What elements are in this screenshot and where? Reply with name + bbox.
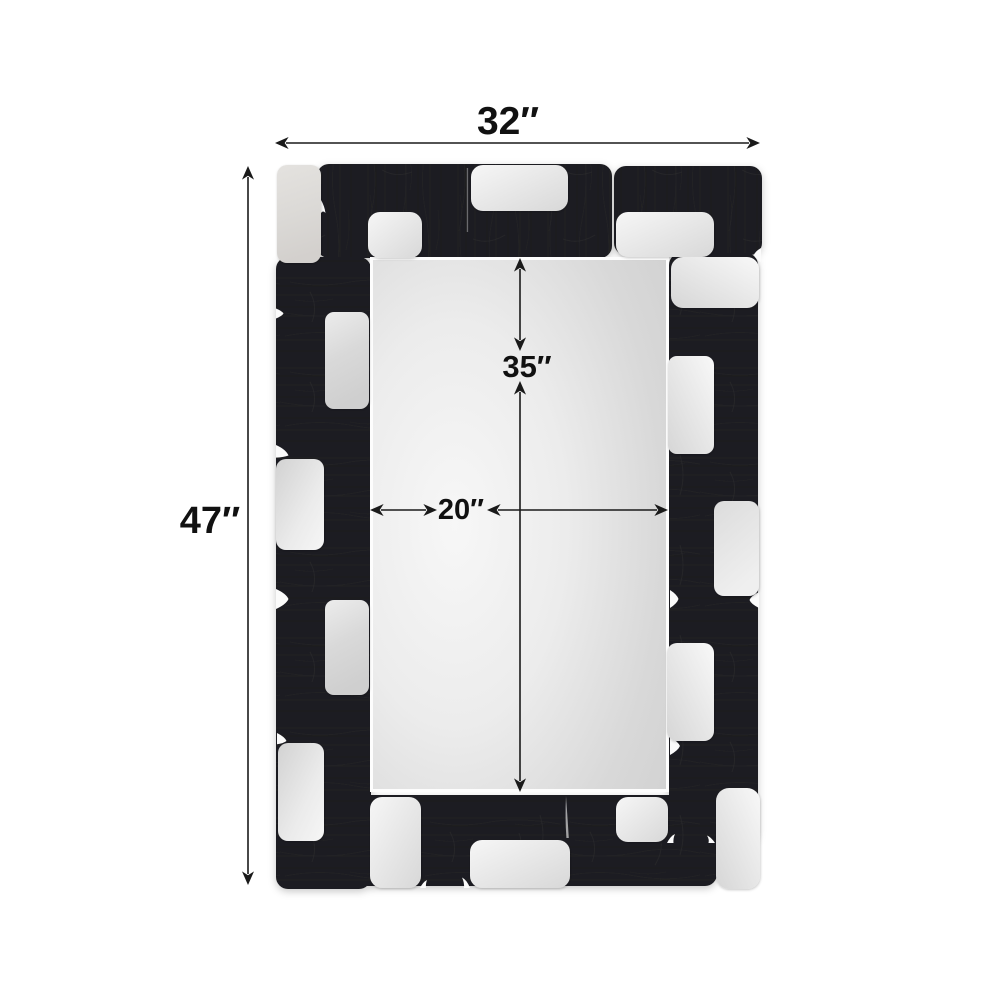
svg-text:35″: 35″	[502, 349, 551, 384]
svg-text:47″: 47″	[180, 500, 240, 542]
svg-text:20″: 20″	[438, 494, 484, 526]
svg-text:32″: 32″	[477, 100, 539, 143]
